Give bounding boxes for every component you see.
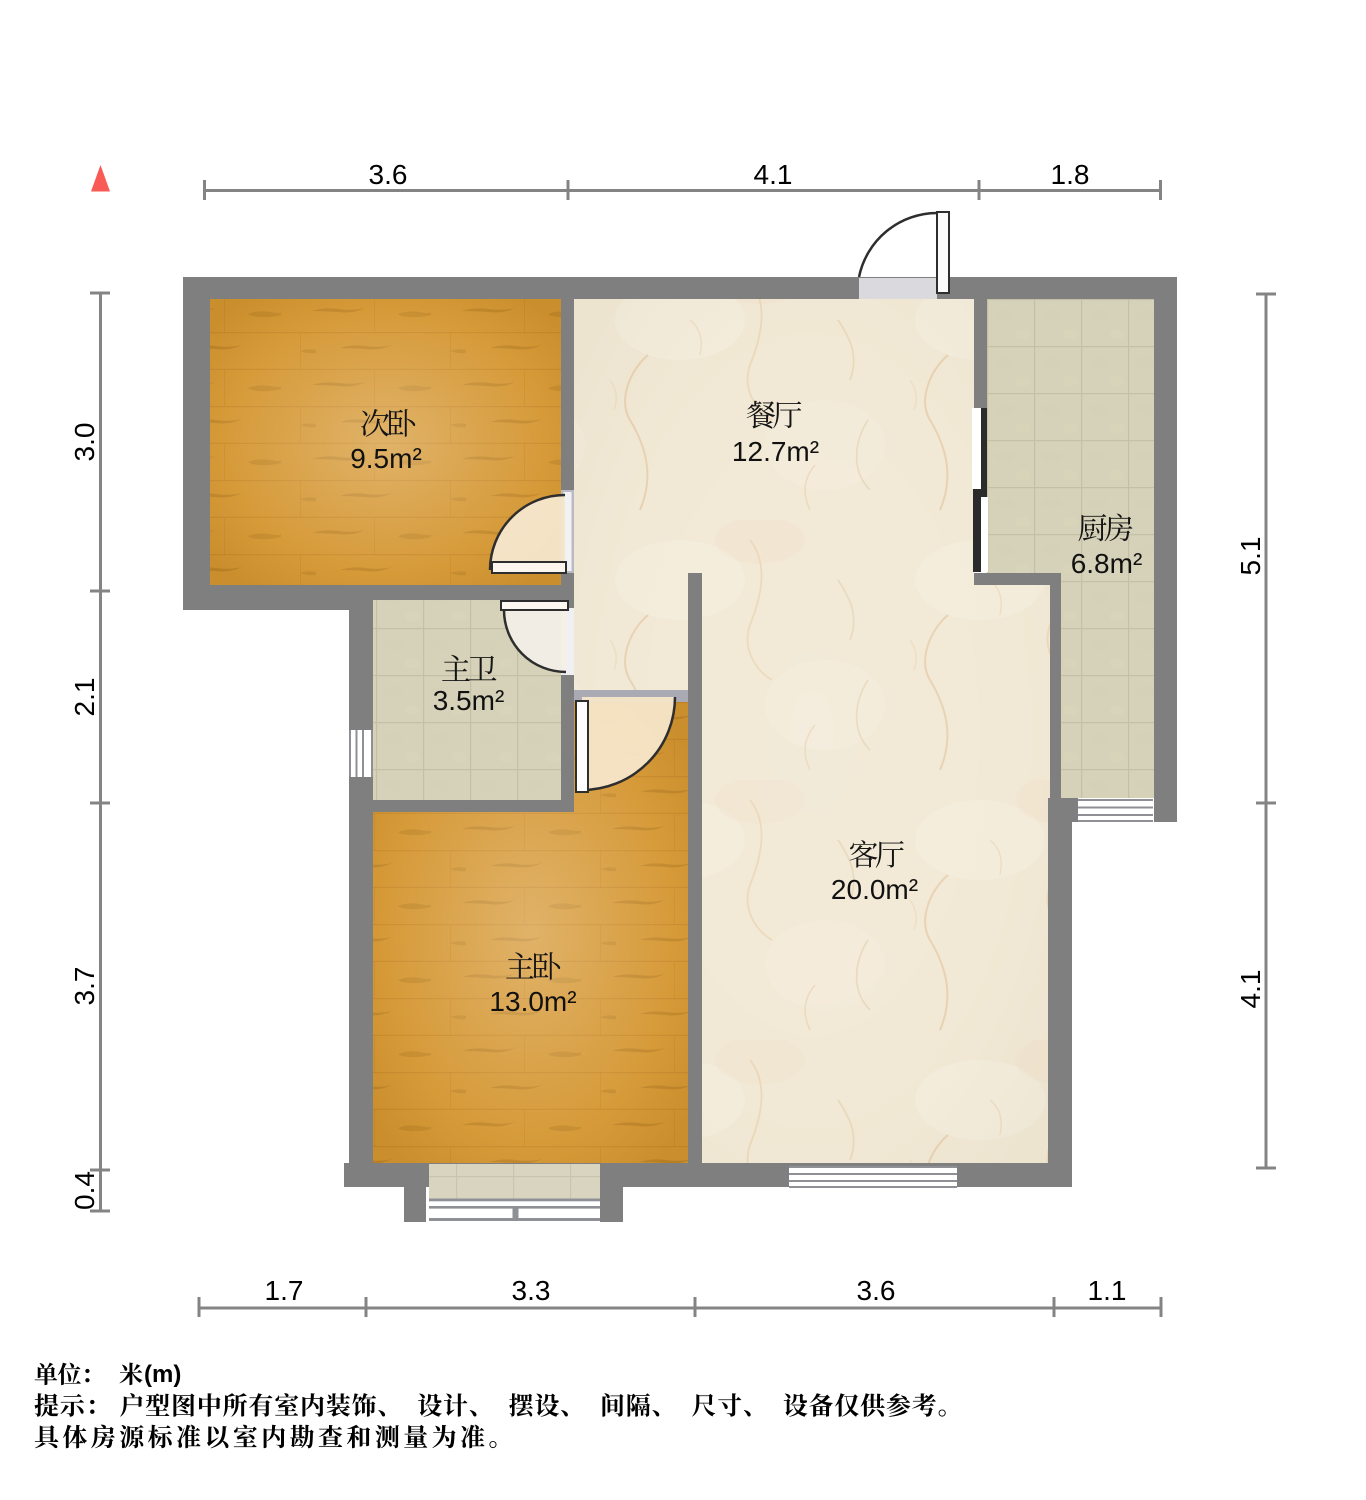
svg-text:2.1: 2.1 (69, 678, 100, 717)
svg-text:3.6: 3.6 (369, 159, 408, 190)
svg-text:3.7: 3.7 (69, 967, 100, 1006)
svg-text:3.6: 3.6 (857, 1275, 896, 1306)
svg-text:6.8m²: 6.8m² (1071, 548, 1143, 579)
svg-text:3.5m²: 3.5m² (433, 685, 505, 716)
svg-text:12.7m²: 12.7m² (732, 436, 819, 467)
svg-text:4.1: 4.1 (1235, 970, 1266, 1009)
svg-text:1.7: 1.7 (265, 1275, 304, 1306)
svg-text:1.8: 1.8 (1051, 159, 1090, 190)
svg-text:5.1: 5.1 (1235, 537, 1266, 576)
svg-text:20.0m²: 20.0m² (831, 874, 918, 905)
svg-text:1.1: 1.1 (1088, 1275, 1127, 1306)
svg-text:3.0: 3.0 (69, 423, 100, 462)
svg-text:3.3: 3.3 (512, 1275, 551, 1306)
svg-text:4.1: 4.1 (754, 159, 793, 190)
svg-text:9.5m²: 9.5m² (350, 443, 422, 474)
svg-text:13.0m²: 13.0m² (489, 986, 576, 1017)
svg-text:(m): (m) (144, 1361, 181, 1388)
svg-text:0.4: 0.4 (69, 1171, 100, 1210)
